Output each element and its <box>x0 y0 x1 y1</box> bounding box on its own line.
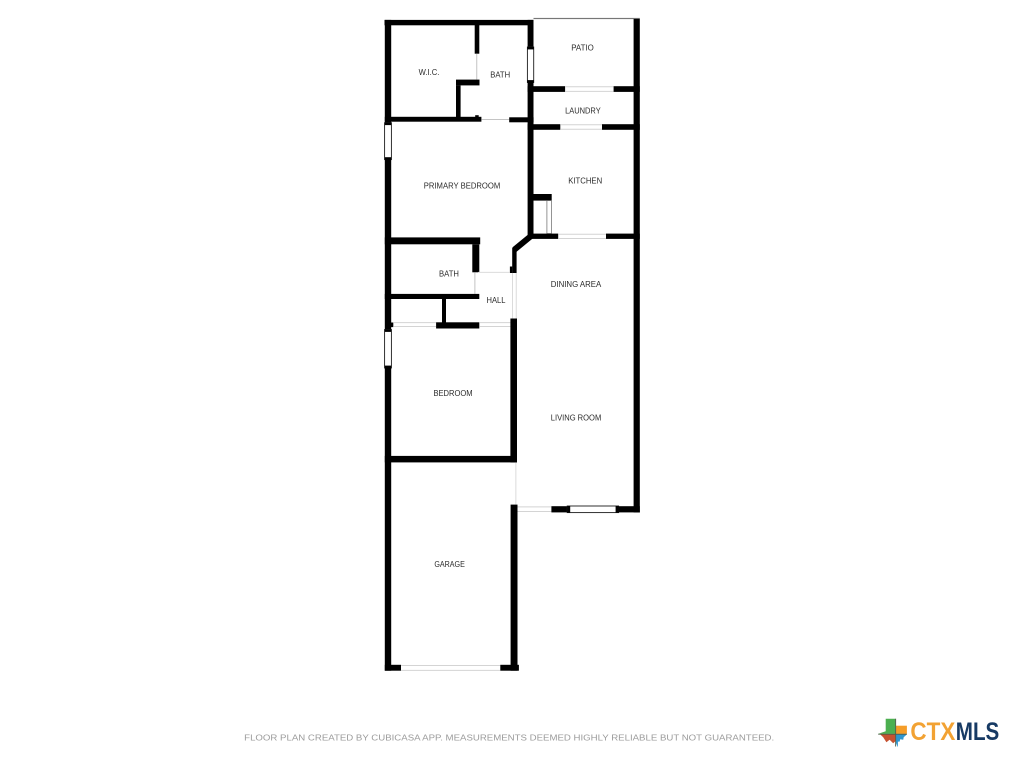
svg-text:LAUNDRY: LAUNDRY <box>565 106 601 115</box>
svg-text:LIVING ROOM: LIVING ROOM <box>551 413 602 422</box>
svg-text:MLS: MLS <box>956 718 1000 746</box>
svg-text:PATIO: PATIO <box>571 43 594 52</box>
svg-text:FLOOR PLAN CREATED BY CUBICASA: FLOOR PLAN CREATED BY CUBICASA APP. MEAS… <box>244 733 774 742</box>
svg-text:GARAGE: GARAGE <box>434 560 465 569</box>
svg-text:W.I.C.: W.I.C. <box>419 68 440 77</box>
svg-text:BATH: BATH <box>490 70 510 79</box>
svg-text:BATH: BATH <box>439 269 459 278</box>
svg-text:PRIMARY BEDROOM: PRIMARY BEDROOM <box>424 182 501 191</box>
svg-text:KITCHEN: KITCHEN <box>568 177 602 186</box>
svg-text:CTX: CTX <box>910 718 955 746</box>
svg-text:HALL: HALL <box>487 296 506 305</box>
svg-text:BEDROOM: BEDROOM <box>433 389 472 398</box>
svg-text:DINING AREA: DINING AREA <box>551 280 602 289</box>
